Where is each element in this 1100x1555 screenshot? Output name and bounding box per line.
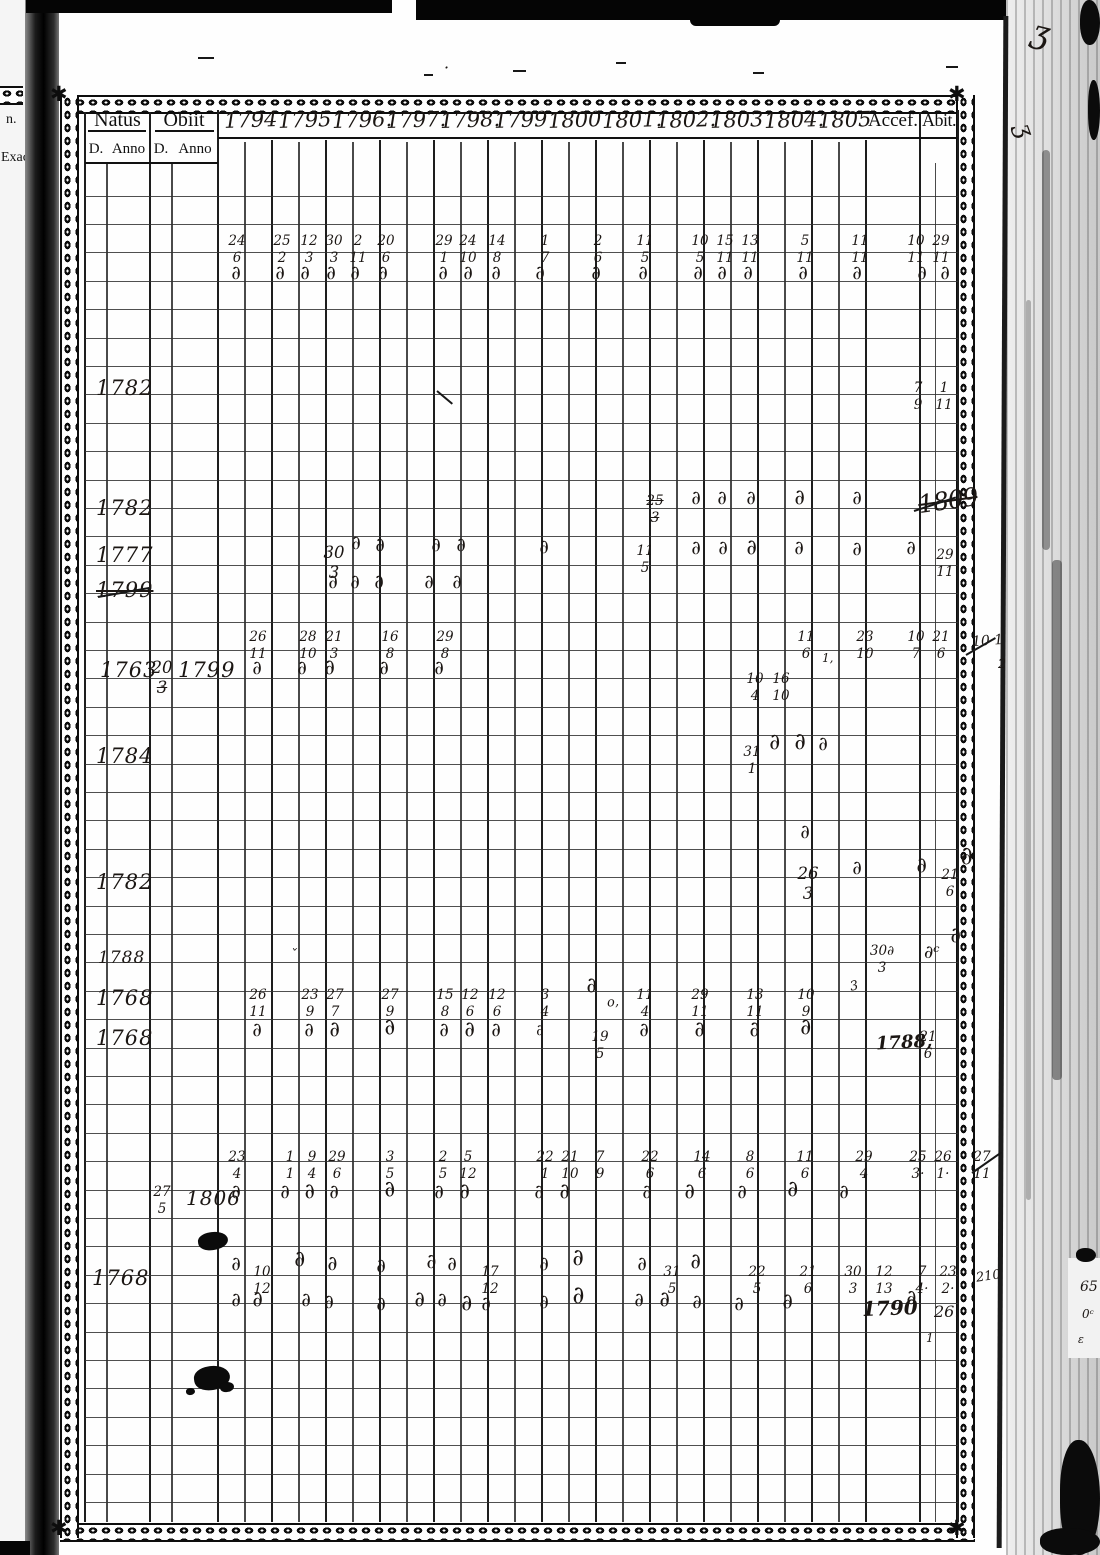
- corner-rosette-top-right: ✱: [948, 84, 966, 105]
- handwritten-entry: ∂: [251, 1020, 263, 1040]
- handwritten-entry: ∂: [851, 539, 863, 559]
- year-header-handwritten: 1801.: [602, 109, 663, 132]
- grid-line: [85, 480, 958, 481]
- grid-line: [85, 1360, 958, 1361]
- ink-blot: [197, 1230, 229, 1252]
- scan-top-bar-left: [26, 0, 392, 13]
- handwritten-entry: 2: [998, 658, 1006, 671]
- handwritten-entry: ∂: [716, 263, 728, 283]
- grid-line: [85, 735, 958, 736]
- handwritten-entry: ∂: [373, 572, 385, 592]
- year-header-handwritten: 1795: [278, 109, 332, 132]
- handwritten-entry: 65: [1080, 1280, 1098, 1294]
- handwritten-entry: 79: [585, 1151, 615, 1181]
- grid-line: [433, 140, 435, 1522]
- grid-line: [919, 112, 921, 1522]
- handwritten-entry: ∂: [797, 263, 809, 283]
- edge-blot: [1040, 1528, 1100, 1555]
- grid-line: [514, 142, 515, 1522]
- scan-top-bar-right: [416, 0, 1100, 20]
- handwritten-entry: 232·: [933, 1266, 963, 1296]
- grid-line: [85, 309, 958, 310]
- handwritten-entry: ∂: [480, 1294, 492, 1314]
- handwritten-entry: ∂: [436, 1290, 448, 1310]
- handwritten-entry: 26: [583, 235, 613, 265]
- handwritten-entry: ε: [1078, 1334, 1084, 1345]
- handwritten-entry: 2310: [850, 631, 880, 661]
- handwritten-entry: 252: [267, 235, 297, 265]
- handwritten-entry: 216: [913, 1031, 943, 1061]
- handwritten-entry: ∂: [323, 1292, 335, 1312]
- handwritten-entry: ∂: [637, 263, 649, 283]
- handwritten-entry: ∂: [590, 263, 602, 283]
- handwritten-entry: ∂: [641, 1182, 653, 1202]
- grid-line: [85, 1104, 958, 1105]
- grid-line: [85, 820, 958, 821]
- grid-line: [622, 142, 623, 1522]
- handwritten-entry: ∂: [377, 263, 389, 283]
- handwritten-entry: 1768: [96, 988, 153, 1009]
- handwritten-entry: 116: [791, 631, 821, 661]
- grid-line: [85, 565, 958, 566]
- handwritten-entry: ∂: [717, 538, 729, 558]
- handwritten-entry: ∂: [786, 1178, 800, 1201]
- previous-page-chain-fragment: [0, 86, 23, 105]
- handwritten-entry: 1111: [845, 235, 875, 265]
- handwritten-entry: 1213: [869, 1266, 899, 1296]
- grid-line: [298, 142, 299, 1522]
- grid-line: [85, 1048, 958, 1049]
- handwritten-entry: 148: [482, 235, 512, 265]
- binding-gutter-shadow: [25, 0, 59, 1555]
- handwritten-entry: 115: [630, 545, 660, 575]
- handwritten-entry: 34: [530, 989, 560, 1019]
- grid-line: [244, 142, 245, 1522]
- handwritten-entry: ∂: [690, 538, 702, 558]
- handwritten-entry: ∂: [430, 535, 442, 555]
- handwritten-entry: 511: [790, 235, 820, 265]
- grid-line: [85, 1445, 958, 1446]
- handwritten-entry: 1782: [96, 378, 153, 399]
- handwritten-entry: ∂: [230, 1290, 242, 1310]
- handwritten-entry: ∂: [905, 538, 917, 558]
- handwritten-entry: 246: [222, 235, 252, 265]
- handwritten-entry: ∂: [425, 1250, 438, 1271]
- handwritten-entry: 2911: [685, 989, 715, 1019]
- handwritten-entry: ∂: [533, 1182, 545, 1202]
- pen-stroke: [198, 57, 214, 59]
- handwritten-entry: 17: [530, 235, 560, 265]
- year-header-handwritten: 1805: [818, 109, 872, 132]
- handwritten-entry: ∂: [413, 1288, 427, 1310]
- grid-line: [85, 1502, 958, 1503]
- handwritten-entry: ∂: [691, 1292, 703, 1312]
- handwritten-entry: 2611: [243, 989, 273, 1019]
- page-fore-edge-texture: [1006, 0, 1100, 1555]
- handwritten-entry: 26.: [934, 1304, 959, 1320]
- edge-blot: [1080, 0, 1100, 45]
- grid-line: [85, 622, 958, 623]
- grid-line: [85, 707, 958, 708]
- handwritten-entry: 311: [737, 746, 767, 776]
- handwritten-entry: ∂: [490, 1020, 502, 1040]
- handwritten-entry: ∂: [939, 263, 951, 283]
- handwritten-entry: 1712: [475, 1266, 505, 1296]
- handwritten-entry: ∂: [299, 263, 311, 283]
- handwritten-entry: ∂: [683, 1180, 697, 1202]
- handwritten-entry: ∂: [230, 263, 242, 283]
- handwritten-entry: ∂ᶜ: [924, 944, 940, 962]
- handwritten-entry: 296: [322, 1151, 352, 1181]
- grid-line: [149, 112, 151, 1522]
- grid-line: [85, 764, 958, 765]
- handwritten-entry: ∂: [633, 1290, 645, 1310]
- handwritten-entry: 195: [585, 1031, 615, 1061]
- handwritten-entry: 277: [320, 989, 350, 1019]
- handwritten-entry: ˇ: [290, 948, 297, 962]
- grid-line: [85, 792, 958, 793]
- handwritten-entry: ∂: [851, 488, 863, 508]
- handwritten-entry: ∂: [326, 1252, 339, 1273]
- handwritten-entry: 1: [926, 1332, 934, 1344]
- handwritten-entry: 1784: [96, 746, 153, 767]
- handwritten-entry: ∂: [460, 1292, 474, 1315]
- handwritten-entry: ∂: [534, 263, 546, 283]
- chain-border-left: [60, 95, 79, 1538]
- grid-line: [85, 906, 958, 907]
- handwritten-entry: ∂: [745, 488, 757, 508]
- grid-line: [784, 142, 785, 1522]
- handwritten-entry: 115: [630, 235, 660, 265]
- handwritten-entry: ∂: [303, 1020, 315, 1040]
- handwritten-entry: 216: [926, 631, 956, 661]
- handwritten-entry: ∂: [349, 572, 361, 592]
- grid-line: [811, 140, 813, 1522]
- handwritten-entry: ∂: [736, 1182, 748, 1202]
- corner-rosette-bottom-left: ✱: [50, 1518, 68, 1539]
- corner-rosette-top-left: ✱: [50, 84, 68, 105]
- ink-blot: [219, 1381, 234, 1393]
- handwritten-entry: 1610: [766, 673, 796, 703]
- handwritten-entry: ∂: [817, 734, 829, 754]
- handwritten-entry: ∂: [446, 1254, 458, 1274]
- handwritten-entry: o,: [606, 995, 619, 1009]
- year-header-handwritten: 1797.: [386, 109, 447, 132]
- handwritten-entry: ∂: [716, 488, 728, 508]
- scan-top-bar-nub: [690, 18, 780, 26]
- grid-line: [85, 1332, 958, 1333]
- pen-stroke: [753, 72, 764, 74]
- handwritten-entry: 2911: [926, 235, 956, 265]
- grid-line: [352, 142, 353, 1522]
- handwritten-entry: 225: [742, 1266, 772, 1296]
- subheader-obiit-d: D.: [150, 141, 172, 158]
- handwritten-entry: 86: [735, 1151, 765, 1181]
- handwritten-entry: ∂: [375, 1294, 387, 1314]
- grid-line: [703, 140, 705, 1522]
- grid-line: [85, 1417, 958, 1418]
- pen-stroke: [436, 390, 453, 404]
- scan-bottom-bar: [0, 1541, 30, 1555]
- pen-stroke: [946, 66, 958, 68]
- handwritten-entry: ∂: [535, 1023, 545, 1039]
- handwritten-entry: 226: [635, 1151, 665, 1181]
- grid-line: [85, 508, 958, 509]
- previous-page-text-bottom: Exact: [1, 150, 25, 166]
- scanned-ledger-page: n. Exact ✱ ✱ ✱ ✱ Natus Obiit D. Anno D. …: [0, 0, 1100, 1555]
- handwritten-entry: ∂: [328, 1182, 340, 1202]
- year-header-handwritten: 1803: [710, 109, 764, 132]
- handwritten-entry: 1311: [740, 989, 770, 1019]
- handwritten-entry: ∂: [570, 1246, 585, 1270]
- handwritten-entry: 203: [147, 660, 177, 695]
- handwritten-entry: 1799: [178, 660, 235, 681]
- handwritten-entry: ∂: [349, 263, 361, 283]
- handwritten-entry: ∂: [463, 1018, 477, 1040]
- handwritten-entry: ∂: [325, 263, 337, 283]
- handwritten-entry: ∂: [375, 1256, 387, 1276]
- grid-line: [85, 593, 958, 594]
- grid-line: [460, 142, 461, 1522]
- grid-line: [85, 1161, 958, 1162]
- handwritten-entry: 1782: [96, 498, 153, 519]
- handwritten-entry: 2911: [930, 549, 960, 579]
- handwritten-entry: ∂: [490, 263, 502, 283]
- handwritten-entry: ∂: [230, 1254, 242, 1274]
- handwritten-entry: ∂: [382, 1178, 398, 1202]
- grid-line: [676, 142, 677, 1522]
- year-header-handwritten: 1802.: [656, 109, 717, 132]
- handwritten-entry: ∂: [742, 263, 754, 283]
- grid-line: [730, 142, 731, 1522]
- grid-line: [88, 130, 146, 132]
- year-header-handwritten: 1800: [548, 109, 602, 132]
- column-header-natus: Natus: [85, 109, 150, 132]
- grid-line: [85, 536, 958, 537]
- handwritten-entry: ∂: [689, 1250, 703, 1272]
- grid-line: [85, 162, 218, 164]
- handwritten-entry: 216: [793, 1266, 823, 1296]
- handwritten-entry: ∂: [438, 1020, 450, 1040]
- handwritten-entry: 111: [929, 382, 959, 412]
- handwritten-entry: 1788: [98, 950, 145, 967]
- subheader-natus-anno: Anno: [107, 141, 150, 158]
- handwritten-entry: 263: [793, 866, 823, 901]
- grid-line: [85, 196, 958, 197]
- handwritten-entry: ∂: [916, 263, 928, 283]
- edge-streak: [1052, 560, 1062, 1080]
- handwritten-entry: ∂: [636, 1254, 648, 1274]
- handwritten-entry: ∂: [302, 1180, 317, 1203]
- handwritten-entry: ∂: [458, 1180, 472, 1202]
- handwritten-entry: ∂: [733, 1294, 745, 1314]
- grid-line: [568, 142, 569, 1522]
- edge-blot: [1088, 80, 1100, 140]
- grid-line: [649, 140, 651, 1522]
- grid-line: [838, 142, 839, 1522]
- grid-line: [85, 451, 958, 452]
- handwritten-entry: ∂: [748, 1018, 762, 1040]
- handwritten-entry: ∂: [538, 1292, 550, 1312]
- grid-line: [155, 130, 214, 132]
- previous-page-sliver: n. Exact: [0, 0, 25, 1555]
- grid-line: [406, 142, 407, 1522]
- handwritten-entry: 1768: [92, 1268, 149, 1289]
- grid-line: [85, 281, 958, 282]
- grid-line: [85, 1076, 958, 1077]
- column-header-obiit: Obiit: [150, 109, 218, 132]
- grid-line: [217, 110, 220, 1522]
- grid-line: [85, 1275, 958, 1276]
- handwritten-entry: 298: [430, 631, 460, 661]
- handwritten-entry: 1777: [96, 545, 153, 566]
- year-header-handwritten: 1794: [224, 109, 278, 132]
- edge-streak: [1042, 150, 1050, 550]
- subheader-obiit-anno: Anno: [172, 141, 218, 158]
- grid-line: [325, 140, 327, 1522]
- handwritten-entry: ∂: [538, 537, 550, 557]
- edge-blot: [1076, 1248, 1096, 1262]
- handwritten-entry: ∂: [455, 535, 467, 555]
- handwritten-entry: 1311: [735, 235, 765, 265]
- grid-line: [85, 423, 958, 424]
- handwritten-entry: ·: [444, 60, 449, 76]
- year-header-handwritten: 1796.: [332, 109, 393, 132]
- handwritten-entry: 1782: [96, 872, 153, 893]
- handwritten-entry: ∂: [279, 1182, 291, 1202]
- pen-stroke: [616, 62, 626, 64]
- chain-border-bottom: [60, 1523, 975, 1542]
- year-header-handwritten: 1804.: [764, 109, 825, 132]
- handwritten-entry: 114: [630, 989, 660, 1019]
- handwritten-entry: 211: [343, 235, 373, 265]
- grid-line: [85, 991, 958, 992]
- handwritten-entry: 275: [147, 1186, 177, 1216]
- handwritten-entry: ∂: [793, 538, 805, 558]
- handwritten-entry: 210: [975, 1268, 1001, 1284]
- previous-page-text-top: n.: [6, 112, 17, 128]
- grid-line: [85, 224, 958, 225]
- grid-line: [757, 140, 759, 1522]
- handwritten-entry: 206: [371, 235, 401, 265]
- grid-line: [85, 1133, 958, 1134]
- pen-stroke: [424, 74, 433, 76]
- handwritten-entry: 146: [687, 1151, 717, 1181]
- handwritten-entry: ∂: [293, 1248, 307, 1271]
- grid-line: [84, 112, 86, 1522]
- handwritten-entry: 261·: [928, 1151, 958, 1181]
- handwritten-entry: ∂: [462, 263, 474, 283]
- handwritten-entry: ∂: [433, 1182, 445, 1202]
- handwritten-entry: ∂: [300, 1290, 312, 1310]
- handwritten-entry: ∂: [793, 486, 807, 508]
- column-header-abiit: Abit.: [918, 110, 960, 131]
- grid-line: [85, 252, 958, 253]
- handwritten-entry: ∂: [792, 730, 807, 754]
- handwritten-entry: 2410: [453, 235, 483, 265]
- grid-line: [85, 1218, 958, 1219]
- handwritten-entry: 253: [640, 495, 670, 525]
- grid-line: [85, 934, 958, 935]
- grid-line: [271, 140, 273, 1522]
- handwritten-entry: ∂: [374, 535, 386, 555]
- subheader-natus-d: D.: [85, 141, 107, 158]
- grid-line: [85, 1019, 958, 1020]
- handwritten-entry: 2110: [555, 1151, 585, 1181]
- handwritten-entry: 30∂3: [867, 945, 897, 975]
- pen-stroke: [513, 70, 526, 72]
- handwritten-entry: 126: [482, 989, 512, 1019]
- grid-line: [85, 849, 958, 850]
- ink-blot: [186, 1387, 196, 1395]
- handwritten-entry: 512: [453, 1151, 483, 1181]
- handwritten-entry: 234: [222, 1151, 252, 1181]
- grid-line: [85, 962, 958, 963]
- grid-line: [85, 338, 958, 339]
- handwritten-entry: ∂: [570, 1282, 586, 1307]
- edge-streak: [1026, 300, 1031, 1200]
- handwritten-entry: 1768: [96, 1028, 153, 1049]
- handwritten-entry: ∂: [915, 854, 929, 876]
- grid-line: [85, 366, 958, 367]
- handwritten-entry: 1,: [822, 652, 833, 664]
- handwritten-entry: 303: [838, 1266, 868, 1296]
- grid-line: [85, 394, 958, 395]
- handwritten-entry: 294: [849, 1151, 879, 1181]
- handwritten-entry: ∂: [274, 263, 286, 283]
- handwritten-entry: 126: [455, 989, 485, 1019]
- grid-line: [85, 1474, 958, 1475]
- year-header-handwritten: 1798.: [440, 109, 501, 132]
- year-header-handwritten: 1799: [494, 109, 548, 132]
- handwritten-entry: ∂: [838, 1182, 850, 1202]
- handwritten-entry: ∂: [690, 488, 702, 508]
- handwritten-entry: ∂: [328, 1018, 342, 1040]
- handwritten-entry: ∂: [851, 858, 863, 878]
- grid-line: [85, 877, 958, 878]
- grid-line: [85, 1303, 958, 1304]
- handwritten-entry: 0ᶜ: [1082, 1308, 1094, 1320]
- handwritten-entry: ∂: [437, 263, 449, 283]
- handwritten-entry: 216: [935, 869, 965, 899]
- column-header-accessit: Accef.: [866, 110, 920, 132]
- grid-line: [595, 140, 597, 1522]
- grid-line: [541, 140, 543, 1522]
- handwritten-entry: ∂: [851, 263, 863, 283]
- handwritten-entry: ∂: [538, 1254, 550, 1274]
- handwritten-entry: 3: [849, 979, 860, 993]
- handwritten-entry: 168: [375, 631, 405, 661]
- grid-line: [218, 137, 958, 139]
- handwritten-entry: ∂: [799, 822, 811, 842]
